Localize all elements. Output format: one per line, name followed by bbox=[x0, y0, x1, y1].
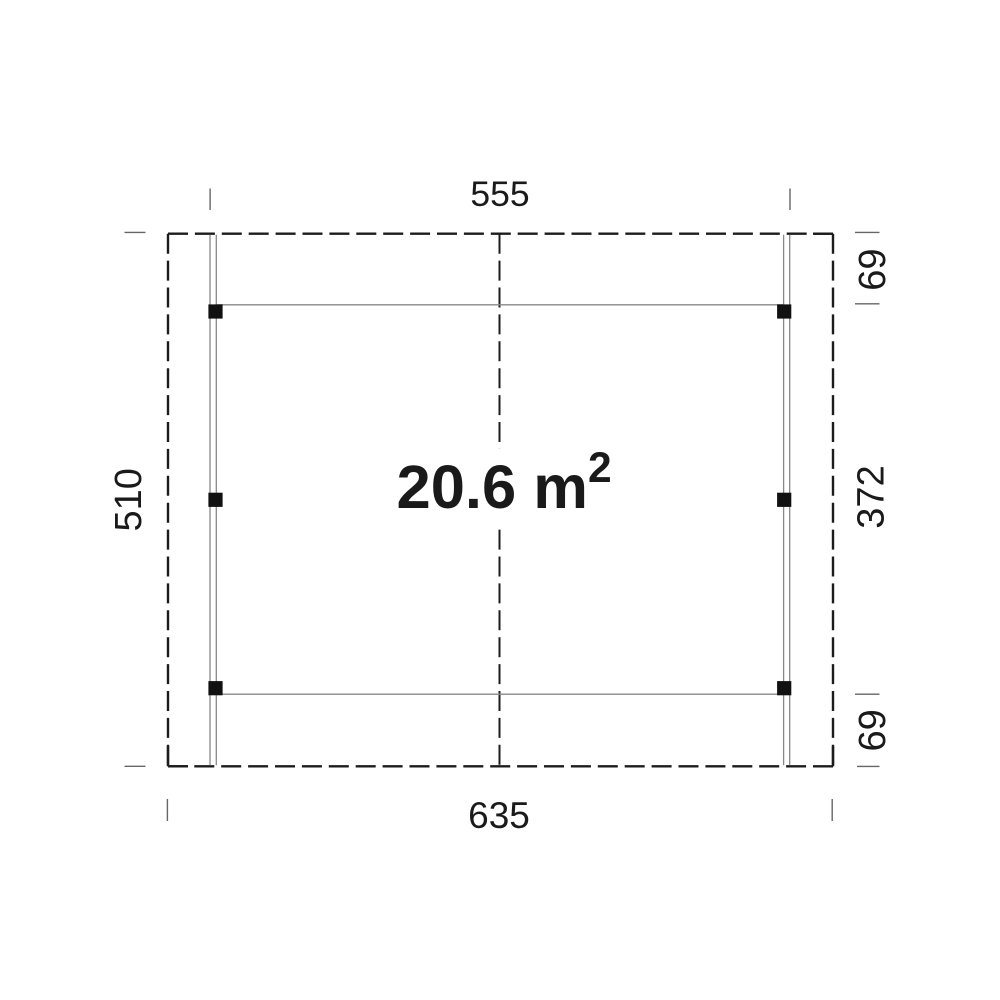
svg-text:372: 372 bbox=[851, 465, 893, 528]
svg-text:555: 555 bbox=[470, 174, 529, 214]
svg-text:69: 69 bbox=[852, 248, 894, 290]
svg-text:69: 69 bbox=[852, 709, 894, 751]
svg-text:510: 510 bbox=[108, 468, 150, 531]
svg-text:20.6 m2: 20.6 m2 bbox=[397, 445, 612, 522]
svg-text:635: 635 bbox=[468, 795, 530, 836]
